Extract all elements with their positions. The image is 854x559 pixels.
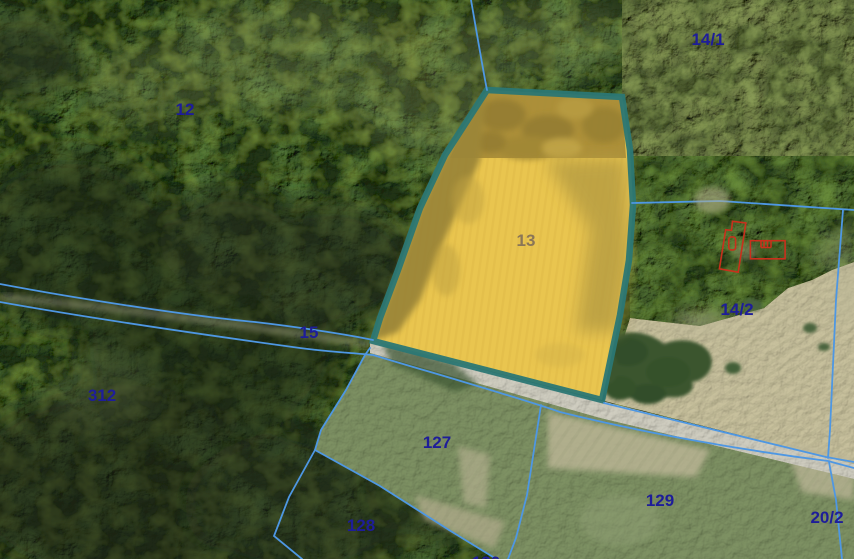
svg-text:128: 128 (347, 516, 375, 535)
svg-text:14/1: 14/1 (691, 30, 724, 49)
svg-text:127: 127 (423, 433, 451, 452)
svg-text:129: 129 (646, 491, 674, 510)
svg-text:13: 13 (517, 231, 536, 250)
svg-text:130: 130 (472, 553, 500, 559)
svg-text:12: 12 (176, 100, 195, 119)
svg-text:312: 312 (88, 386, 116, 405)
svg-text:15: 15 (300, 323, 319, 342)
svg-text:14/2: 14/2 (720, 300, 753, 319)
svg-text:20/2: 20/2 (810, 508, 843, 527)
